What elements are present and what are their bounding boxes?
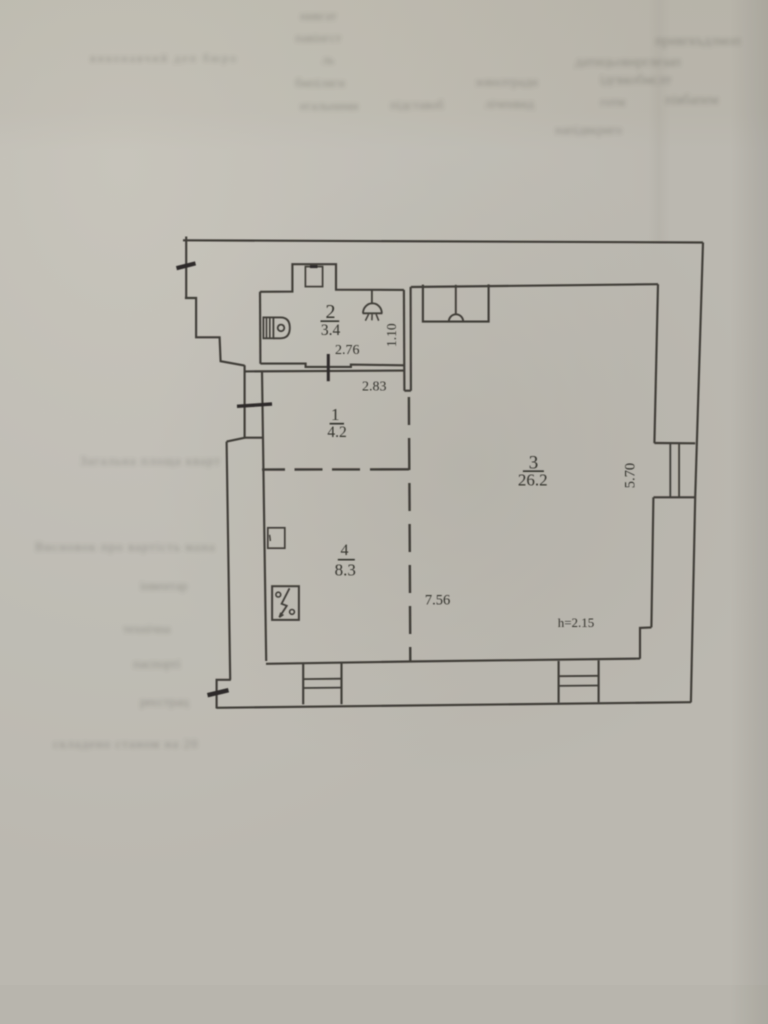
svg-text:виконавчий деп бюро: виконавчий деп бюро <box>90 51 238 65</box>
svg-text:привгкъдлмоп: привгкъдлмоп <box>655 34 741 49</box>
svg-text:зовнлтради: зовнлтради <box>475 74 538 89</box>
svg-text:1: 1 <box>331 405 340 424</box>
svg-text:готм: готм <box>600 94 625 109</box>
svg-text:підставоб: підставоб <box>390 97 444 112</box>
svg-text:ідгвкобмслт: ідгвкобмслт <box>600 73 672 88</box>
svg-text:1.10: 1.10 <box>384 323 399 347</box>
svg-text:2: 2 <box>326 301 336 323</box>
svg-text:півбапем: півбапем <box>665 93 719 108</box>
svg-text:реєстрац: реєстрац <box>140 694 189 709</box>
svg-text:4.2: 4.2 <box>327 424 346 441</box>
svg-text:3.4: 3.4 <box>321 322 341 339</box>
svg-text:ліченвид: ліченвид <box>485 96 534 111</box>
svg-text:4: 4 <box>341 542 349 559</box>
svg-text:бмпіляги: бмпіляги <box>295 75 345 90</box>
svg-text:інвентар: інвентар <box>140 578 187 593</box>
svg-text:26.2: 26.2 <box>518 471 548 490</box>
svg-text:h=2.15: h=2.15 <box>558 615 595 630</box>
svg-text:8.3: 8.3 <box>335 561 356 580</box>
svg-text:ль: ль <box>322 52 334 67</box>
svg-text:Загальна площа кварт: Загальна площа кварт <box>80 453 221 468</box>
svg-text:напідвкриго: напідвкриго <box>555 122 622 137</box>
svg-text:технічна: технічна <box>123 621 171 636</box>
svg-text:складено станом на 20: складено станом на 20 <box>53 736 198 751</box>
svg-text:2.83: 2.83 <box>362 379 387 394</box>
svg-text:нивгат: нивгат <box>300 8 337 23</box>
svg-text:5.70: 5.70 <box>622 463 638 488</box>
svg-text:7.56: 7.56 <box>425 593 450 609</box>
svg-text:2.76: 2.76 <box>335 343 360 358</box>
svg-text:датицьовнрглезап: датицьовнрглезап <box>575 55 682 70</box>
svg-text:павінгст: павінгст <box>295 30 342 45</box>
svg-text:Висновок про вартість мана: Висновок про вартість мана <box>35 539 216 554</box>
svg-text:паспорті: паспорті <box>133 656 181 671</box>
svg-text:егальними: егальними <box>300 98 359 113</box>
